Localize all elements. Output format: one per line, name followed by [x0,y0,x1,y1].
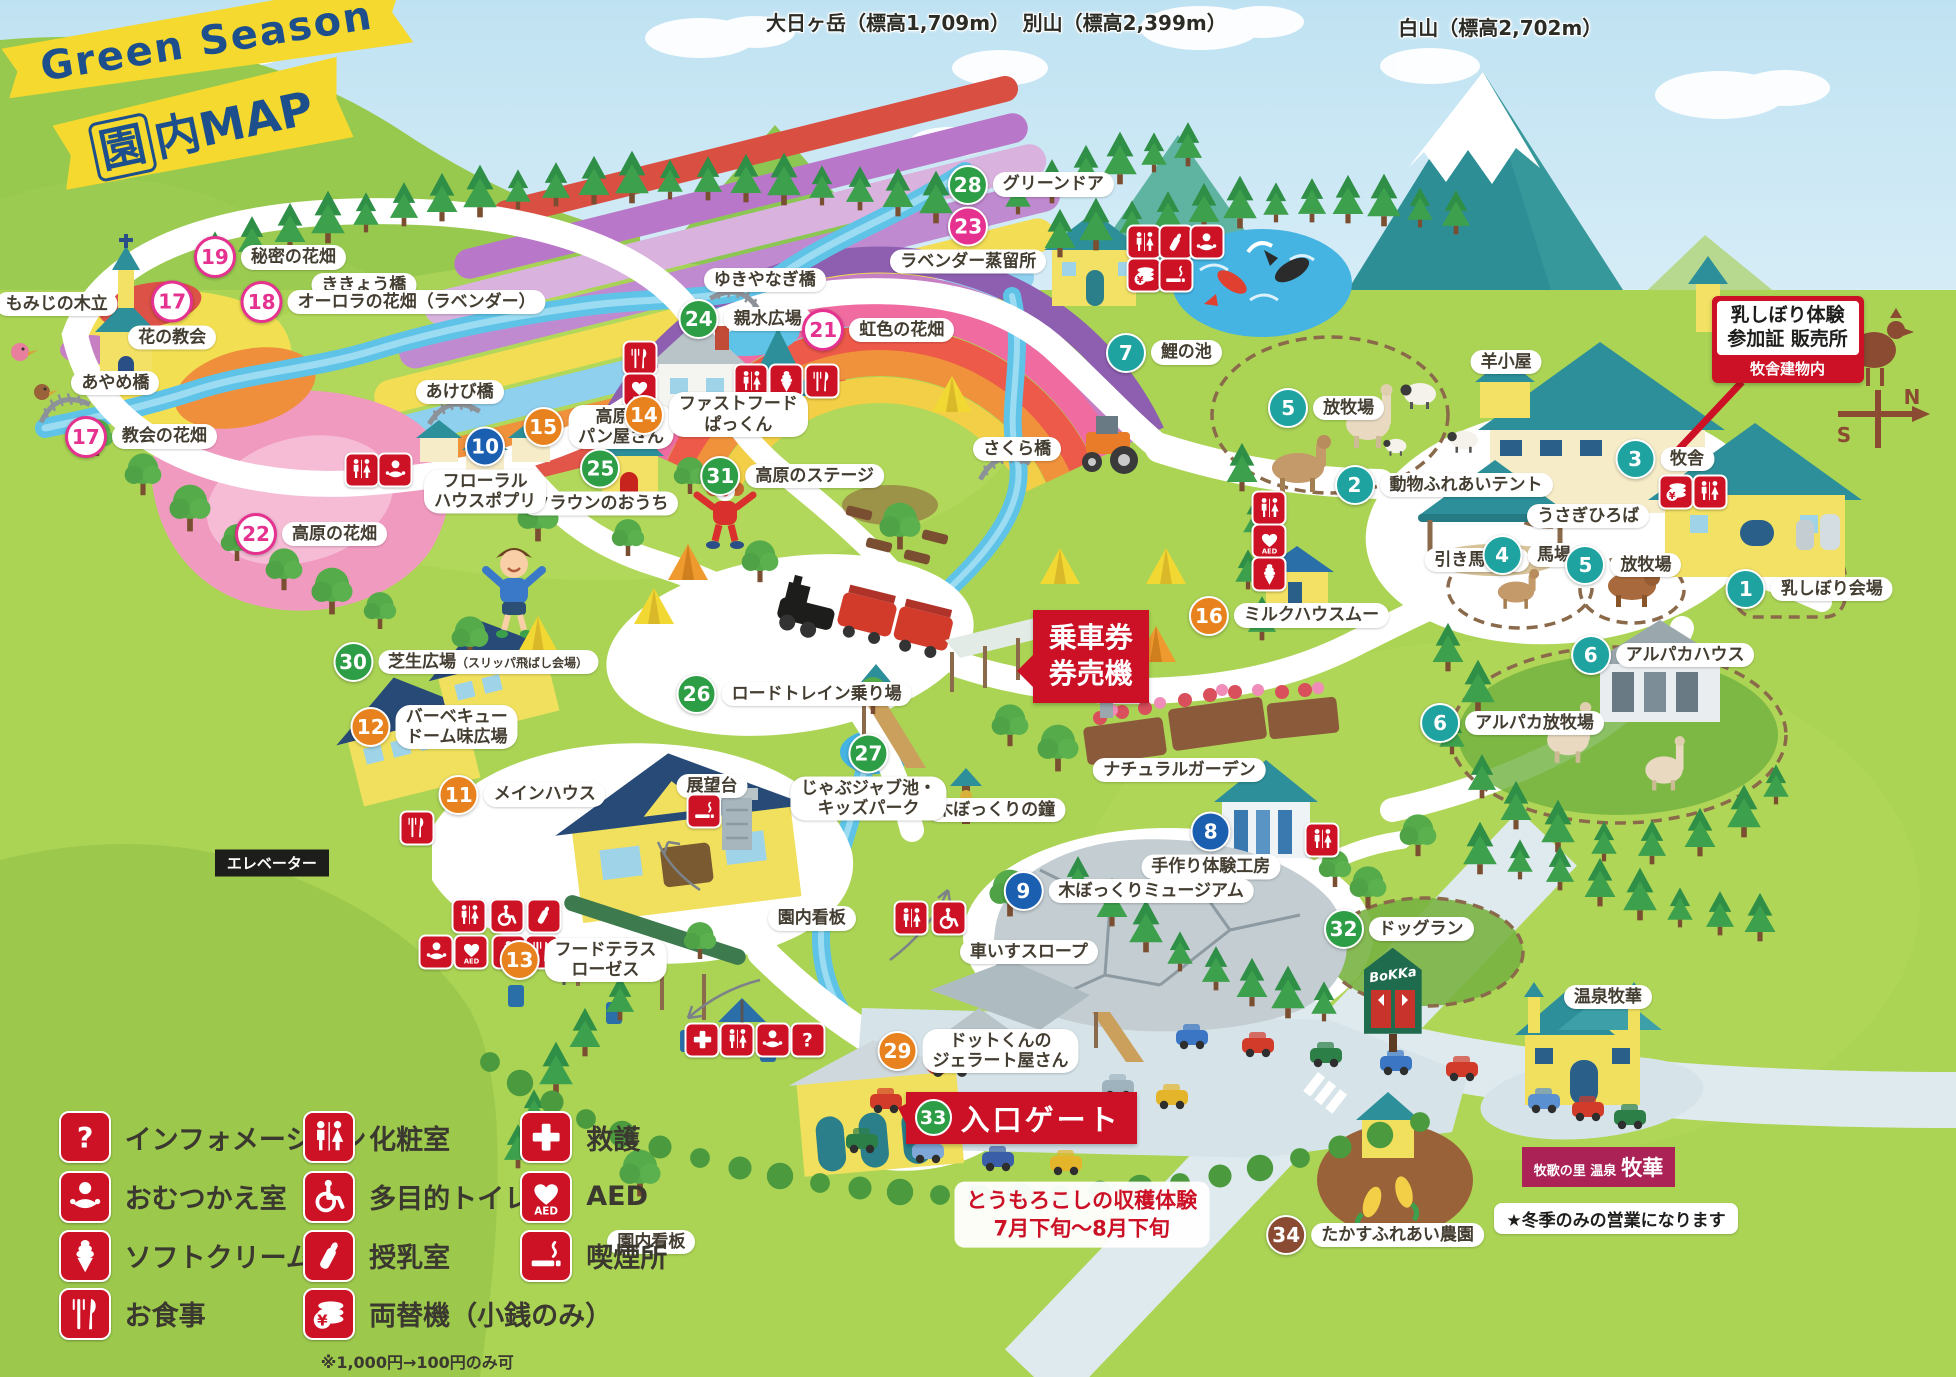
legend-label: 救護 [586,1118,640,1157]
legend-item-restroom: 化粧室 [303,1111,450,1163]
map-label: あけび橋 [416,380,504,404]
poi-16: 16ミルクハウスムー [1189,596,1389,636]
legend-label: 両替機（小銭のみ） [369,1294,612,1333]
poi-label: グリーンドア [993,172,1114,196]
banner-en-char: 園 [87,112,158,183]
poi-2: 2動物ふれあいテント [1335,465,1553,505]
poi-label: ファストフードぱっくん [669,392,808,436]
baby-icon [419,934,454,969]
poi-17: 17花の教会 [128,281,216,350]
svg-text:¥: ¥ [317,1311,328,1329]
poi-number-badge: 2 [1335,465,1375,505]
poi-number-badge: 9 [1003,871,1043,911]
poi-18: 18オーロラの花畑（ラベンダー） [241,281,546,323]
poi-label: 花の教会 [128,326,216,350]
wheelchair-icon [931,901,966,936]
map-label: ゆきやなぎ橋 [704,267,826,291]
svg-text:¥: ¥ [1137,275,1144,286]
poi-label: ドッグラン [1369,917,1474,941]
poi-number-badge: 11 [439,775,479,815]
coins-icon: ¥ [1127,258,1162,293]
poi-label: ミルクハウスムー [1234,603,1389,627]
poi-6: 6アルパカハウス [1571,635,1755,675]
poi-number-badge: 31 [700,456,740,496]
restroom-icon [1305,822,1340,857]
poi-number-badge: 18 [241,281,283,323]
milking-experience-sign: 乳しぼり体験 参加証 販売所 牧舎建物内 [1712,296,1864,383]
map-overlay: Green Season 園内MAP 乳しぼり体験 参加証 販売所 牧舎建物内 … [0,0,1956,1377]
poi-label: フードテラスローゼス [545,938,667,982]
poi-label: ラベンダー蒸留所 [890,249,1046,273]
map-title-banner: Green Season 園内MAP [0,0,428,197]
map-label: ナチュラルガーデン [1093,758,1266,782]
bokka-right-arrow-icon [1395,990,1415,1028]
poi-26: 26ロードトレイン乗り場 [677,674,912,714]
poi-number-badge: 32 [1324,909,1364,949]
poi-number-badge: 24 [679,299,719,339]
poi-label: 放牧場 [1313,396,1384,420]
legend-item-aed: AEDAED [520,1171,648,1223]
poi-label: 虹色の花畑 [849,318,954,342]
poi-28: 28グリーンドア [948,165,1114,205]
poi-label: じゃぶジャブ池・キッズパーク [791,776,946,820]
poi-number-badge: 12 [351,707,391,747]
milking-sign-line2: 参加証 販売所 [1719,328,1857,352]
cross-icon [520,1111,572,1163]
poi-9: 9木ぼっくりミュージアム [1003,871,1253,911]
poi-34: 34たかすふれあい農園 [1266,1215,1484,1255]
aed-icon: AED [1252,524,1287,559]
wheelchair-icon [303,1171,355,1223]
svg-text:AED: AED [1262,547,1278,554]
poi-label: 高原の花畑 [282,522,387,546]
svg-text:¥: ¥ [1669,491,1676,502]
svg-text:?: ? [802,1031,813,1052]
poi-label: ロードトレイン乗り場 [722,682,912,706]
smoking-icon [687,794,722,829]
poi-1: 1乳しぼり会場 [1726,569,1893,609]
poi-number-badge: 10 [465,426,505,466]
map-label: あやめ橋 [71,371,159,395]
poi-27: 27じゃぶジャブ池・キッズパーク [791,733,946,820]
entrance-gate-sign: 33 入口ゲート [906,1092,1137,1144]
onsen-logo-big-text: 牧華 [1621,1152,1663,1182]
poi-number-badge: 26 [677,674,717,714]
poi-label: バーベキュードーム味広場 [396,705,518,749]
poi-10: 10フローラルハウスポプリ [424,426,546,513]
legend-item-cross: 救護 [520,1111,640,1163]
legend-item-coins: ¥両替機（小銭のみ） [303,1288,612,1340]
poi-5: 5放牧場 [1565,545,1681,585]
poi-label: もみじの木立 [0,292,118,316]
winter-only-note: ★冬季のみの営業になります [1494,1203,1737,1234]
poi-label: アルパカハウス [1616,643,1755,667]
poi-number-badge: 6 [1420,703,1460,743]
poi-number-badge: 5 [1268,388,1308,428]
poi-12: 12バーベキュードーム味広場 [351,705,518,749]
poi-number-badge: 34 [1266,1215,1306,1255]
poi-label: ドットくんのジェラート屋さん [923,1029,1079,1073]
legend-label: おむつかえ室 [125,1177,287,1216]
bokka-left-arrow-icon [1371,990,1391,1028]
map-label: 園内看板 [768,906,856,930]
baby-icon [1189,225,1224,260]
corn-harvest-note: とうもろこしの収穫体験 7月下旬～8月下旬 [954,1181,1209,1248]
poi-label: 動物ふれあいテント [1380,473,1553,497]
poi-number-badge: 13 [500,940,540,980]
coins-icon: ¥ [303,1288,355,1340]
poi-7: 7鯉の池 [1106,333,1222,373]
poi-label: オーロラの花畑（ラベンダー） [288,290,546,314]
poi-13: 13フードテラスローゼス [500,938,667,982]
cross-icon [685,1022,720,1057]
baby-icon [378,452,413,487]
map-label: 温泉牧華 [1564,985,1652,1009]
bokka-direction-sign: BoKKa [1364,948,1422,1052]
restroom-icon [720,1022,755,1057]
legend-item-food: お食事 [59,1288,206,1340]
smoking-icon [520,1230,572,1282]
poi-number-badge: 17 [65,416,107,458]
poi-32: 32ドッグラン [1324,909,1474,949]
poi-31: 31高原のステージ [700,456,884,496]
poi-21: 21虹色の花畑 [802,309,954,351]
park-map: S N Green Season 園内MAP 乳しぼり体験 参加証 販売所 牧 [0,0,1956,1377]
poi-number-badge: 7 [1106,333,1146,373]
bottle-icon [303,1230,355,1282]
mountain-label: 大日ヶ岳（標高1,709m） [766,7,1010,36]
baby-icon [59,1171,111,1223]
poi-number-badge: 25 [580,448,620,488]
question-icon: ? [790,1022,825,1057]
poi-24: 24親水広場 [679,299,812,339]
poi-number-badge: 3 [1615,439,1655,479]
entrance-gate-number-badge: 33 [915,1099,952,1136]
legend-label: ソフトクリーム [125,1236,313,1275]
onsen-bokka-logo: 牧歌の里 温泉 牧華 [1522,1147,1676,1187]
restroom-icon [344,452,379,487]
poi-number-badge: 17 [151,281,193,323]
poi-number-badge: 22 [235,513,277,555]
poi-number-badge: 30 [333,642,373,682]
poi-number-badge: 6 [1571,635,1611,675]
corn-note-line1: とうもろこしの収穫体験 [966,1186,1197,1214]
poi-8: 8手作り体験工房 [1141,812,1280,879]
poi-23: 23ラベンダー蒸留所 [890,206,1046,273]
poi-number-badge: 19 [194,236,236,278]
food-icon [804,364,839,399]
wheelchair-icon [489,898,524,933]
milking-sign-line3: 牧舎建物内 [1717,355,1859,379]
legend-item-baby: おむつかえ室 [59,1171,287,1223]
ticket-machine-sign: 乗車券 券売機 [1033,610,1149,703]
poi-number-badge: 21 [802,309,844,351]
entrance-gate-label: 入口ゲート [961,1097,1121,1139]
poi-3: 3牧舎 [1615,439,1714,479]
poi-number-badge: 8 [1191,812,1231,852]
elevator-label: エレベーター [215,850,329,877]
poi-label: 木ぼっくりミュージアム [1048,879,1253,903]
svg-text:AED: AED [464,957,480,964]
corn-note-line2: 7月下旬～8月下旬 [966,1215,1197,1243]
legend-label: お食事 [125,1294,206,1333]
restroom-icon [303,1111,355,1163]
legend-item-wheelchair: 多目的トイレ [303,1171,531,1223]
legend-label: 多目的トイレ [369,1177,531,1216]
poi-label: 教会の花畑 [112,424,217,448]
food-icon [399,810,434,845]
ticket-sign-line2: 券売機 [1049,656,1133,692]
legend-label: AED [586,1181,648,1212]
legend-item-bottle: 授乳室 [303,1230,450,1282]
poi-label: 放牧場 [1610,553,1681,577]
poi-label: 牧舎 [1660,447,1714,471]
softserve-icon [59,1230,111,1282]
restroom-icon [1692,474,1727,509]
ticket-sign-line1: 乗車券 [1049,620,1133,656]
poi-number-badge: 27 [848,733,888,773]
poi-number-badge: 28 [948,165,988,205]
poi-label: メインハウス [484,782,606,806]
mountain-label: 別山（標高2,399m） [1023,7,1227,36]
poi-number-badge: 4 [1482,535,1522,575]
poi-11: 11メインハウス [439,775,606,815]
poi-14: 14ファストフードぱっくん [624,392,808,436]
mountain-label: 白山（標高2,702m） [1398,12,1602,41]
restroom-icon [1127,225,1162,260]
map-label: 羊小屋 [1471,350,1542,374]
poi-number-badge: 5 [1565,545,1605,585]
poi-number-badge: 23 [948,206,988,246]
legend-label: 授乳室 [369,1236,450,1275]
restroom-icon [452,898,487,933]
poi-label: たかすふれあい農園 [1311,1223,1484,1247]
bottle-icon [526,898,561,933]
poi-label: 芝生広場（スリッパ飛ばし会場） [378,650,598,674]
question-icon: ? [59,1111,111,1163]
softserve-icon [1252,557,1287,592]
poi-label: 親水広場 [724,307,812,331]
poi-6: 6アルパカ放牧場 [1420,703,1604,743]
poi-label: アルパカ放牧場 [1465,711,1604,735]
restroom-icon [894,901,929,936]
poi-number-badge: 1 [1726,569,1766,609]
poi-20: 20もみじの木立 [0,283,118,325]
legend-item-smoking: 喫煙所 [520,1230,667,1282]
legend-label: 喫煙所 [586,1236,667,1275]
banner-map-text: 内MAP [149,81,318,167]
legend-changer-note: ※1,000円→100円のみ可 [321,1349,514,1373]
legend-label: 化粧室 [369,1118,450,1157]
smoking-icon [1158,258,1193,293]
aed-icon: AED [454,934,489,969]
svg-text:?: ? [76,1121,93,1155]
aed-icon: AED [520,1171,572,1223]
poi-17: 17教会の花畑 [65,416,217,458]
map-label: 車いすスロープ [960,939,1098,963]
poi-number-badge: 14 [624,394,664,434]
svg-text:AED: AED [534,1206,558,1217]
baby-icon [755,1022,790,1057]
onsen-logo-small-text: 牧歌の里 温泉 [1534,1160,1617,1179]
coins-icon: ¥ [1659,474,1694,509]
restroom-icon [1252,491,1287,526]
poi-22: 22高原の花畑 [235,513,387,555]
poi-19: 19秘密の花畑 [194,236,346,278]
map-label: うさぎひろば [1527,504,1649,528]
poi-number-badge: 29 [878,1031,918,1071]
poi-number-badge: 16 [1189,596,1229,636]
poi-label: 高原のステージ [745,464,884,488]
poi-label: 秘密の花畑 [241,245,346,269]
poi-label: フローラルハウスポプリ [424,469,546,513]
bottle-icon [1158,225,1193,260]
food-icon [622,341,657,376]
poi-label: 乳しぼり会場 [1771,577,1893,601]
poi-29: 29ドットくんのジェラート屋さん [878,1029,1079,1073]
legend-item-softserve: ソフトクリーム [59,1230,313,1282]
map-label: さくら橋 [973,437,1061,461]
milking-sign-line1: 乳しぼり体験 [1719,304,1857,328]
poi-30: 30芝生広場（スリッパ飛ばし会場） [333,642,598,682]
poi-label: 鯉の池 [1151,340,1222,364]
poi-5: 5放牧場 [1268,388,1384,428]
food-icon [59,1288,111,1340]
map-label: 木ぼっくりの鐘 [926,798,1065,822]
